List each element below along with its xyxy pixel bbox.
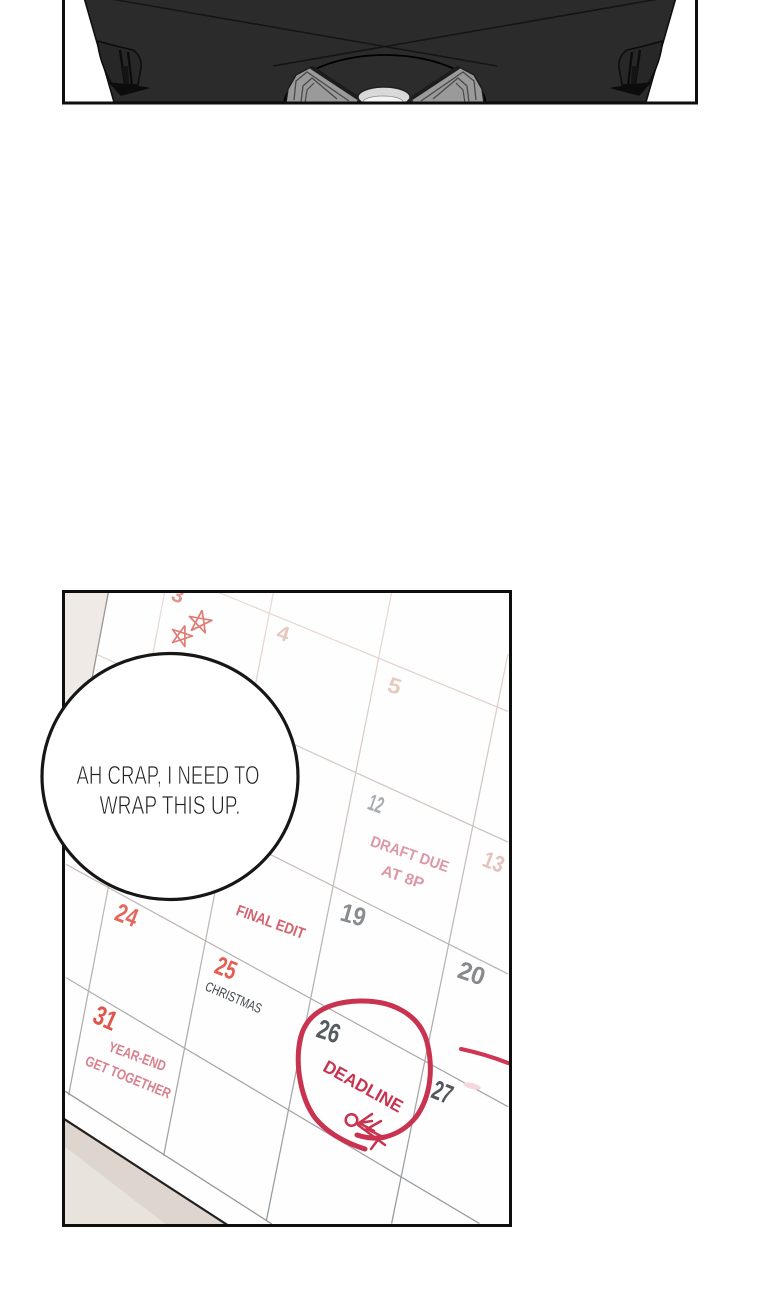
svg-text:AH CRAP, I NEED TO: AH CRAP, I NEED TO <box>77 760 260 790</box>
svg-text:WRAP THIS UP.: WRAP THIS UP. <box>100 790 241 820</box>
